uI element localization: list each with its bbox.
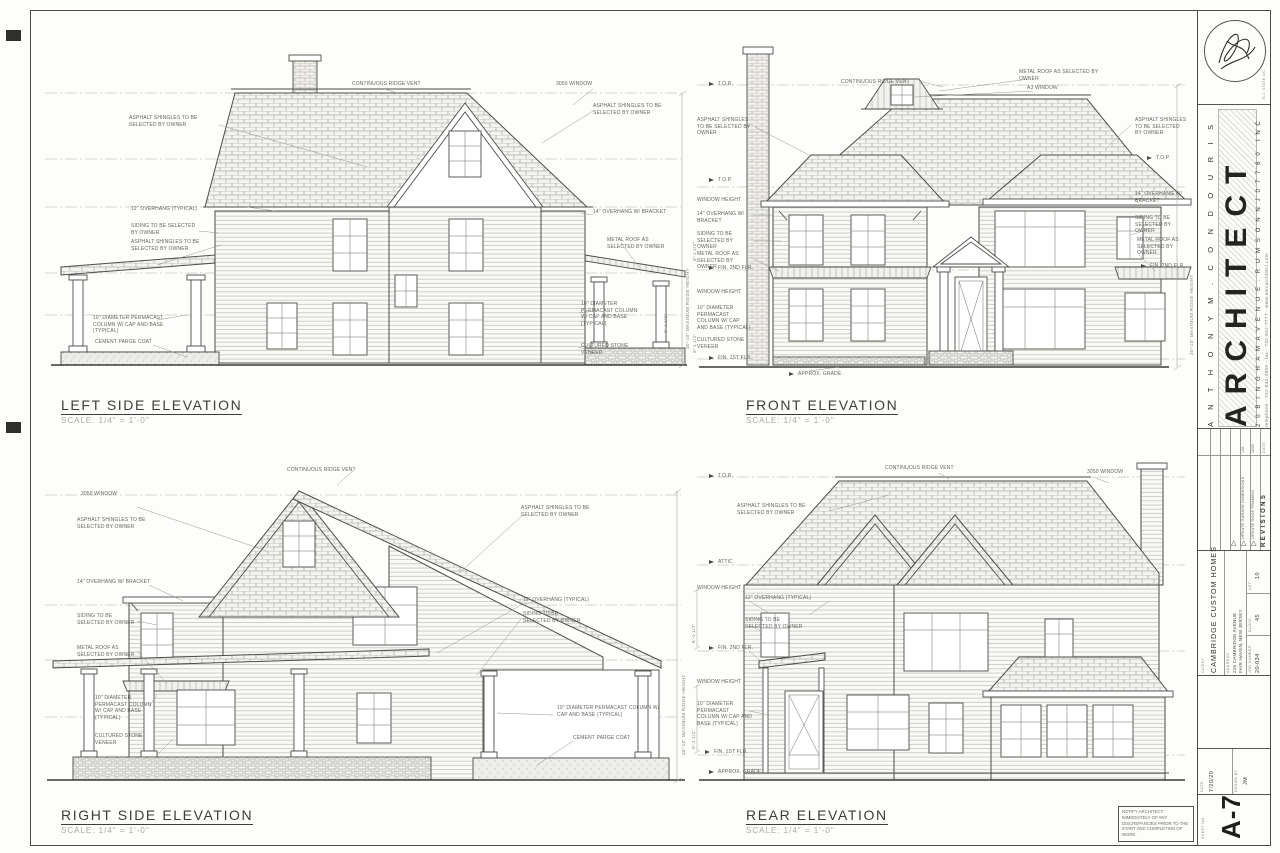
title-block-spare-section bbox=[1198, 676, 1270, 749]
annotation-window-height: WINDOW HEIGHT bbox=[697, 585, 751, 592]
job-number-label: JOB NUMBER bbox=[1248, 645, 1252, 673]
level-marker-icon bbox=[709, 474, 716, 478]
revision-grid-line bbox=[1210, 429, 1211, 550]
elevation-title-right-side: RIGHT SIDE ELEVATION bbox=[61, 807, 253, 825]
annotation-siding-right: SIDING TO BE SELECTED BY OWNER bbox=[523, 611, 585, 624]
annotation-fin-2nd: FIN. 2ND FLR. bbox=[709, 645, 753, 652]
binding-mark bbox=[6, 30, 21, 41]
dim-max-ridge-height: 30'-10" MAXIMUM RIDGE HEIGHT bbox=[681, 674, 687, 755]
annotation-overhang: 12" OVERHANG (TYPICAL) bbox=[523, 597, 615, 604]
annotation-fin-2nd-right: FIN. 2ND FLR. bbox=[1141, 263, 1185, 270]
date-value: 7/20/20 bbox=[1209, 771, 1215, 792]
title-block-date-section: DATE 7/20/20 DRAWN BY JM bbox=[1198, 749, 1270, 795]
block-label: BLOCK bbox=[1248, 618, 1252, 632]
annotation-metal-roof: METAL ROOF AS SELECTED BY OWNER bbox=[77, 645, 137, 658]
firm-name: A N T H O N Y M . C O N D O U R I S bbox=[1206, 120, 1215, 427]
annotation-shingles-right: ASPHALT SHINGLES TO BE SELECTED BY OWNER bbox=[1135, 117, 1187, 137]
firm-contact: telephone - 732-842-3800 - fax - 732-842… bbox=[1264, 253, 1269, 427]
title-block: N.J. STATE LIC. A N T H O N Y M . C O N … bbox=[1197, 11, 1270, 845]
right-side-elevation-panel: 3050 WINDOW ASPHALT SHINGLES TO BE SELEC… bbox=[37, 455, 689, 843]
annotation-tor: T.O.R. bbox=[709, 81, 733, 88]
annotation-shingles-right: ASPHALT SHINGLES TO BE SELECTED BY OWNER bbox=[521, 505, 609, 518]
annotation-ridge-vent: CONTINUOUS RIDGE VENT bbox=[841, 79, 951, 86]
elevation-scale-front: SCALE: 1/4" = 1'-0" bbox=[746, 416, 835, 425]
annotation-overhang-bracket: 14" OVERHANG W/ BRACKET bbox=[697, 211, 753, 224]
annotation-shingles-right: ASPHALT SHINGLES TO BE SELECTED BY OWNER bbox=[593, 103, 683, 116]
annotation-window-height-lower: WINDOW HEIGHT bbox=[697, 679, 751, 686]
date-drawn-divider bbox=[1232, 749, 1233, 794]
annotation-shingles: ASPHALT SHINGLES TO BE SELECTED BY OWNER bbox=[129, 115, 224, 128]
signature-icon bbox=[1205, 21, 1263, 79]
annotation-column-right: 10" DIAMETER PERMACAST COLUMN W/ CAP AND… bbox=[581, 301, 639, 327]
annotation-ridge-vent: CONTINUOUS RIDGE VENT bbox=[885, 465, 1005, 472]
revision-date-2: 1/21 bbox=[1241, 446, 1245, 453]
address-label: ADDRESS bbox=[1226, 653, 1230, 673]
client-name: CAMBRIDGE CUSTOM HOMES bbox=[1209, 546, 1218, 673]
annotation-shingles-left: ASPHALT SHINGLES TO BE SELECTED BY OWNER bbox=[697, 117, 755, 137]
annotation-approx-grade: APPROX. GRADE bbox=[709, 769, 761, 776]
annotation-metal-roof-right: METAL ROOF AS SELECTED BY OWNER bbox=[1137, 237, 1187, 257]
level-marker-icon bbox=[709, 178, 716, 182]
annotation-column: 10" DIAMETER PERMACAST COLUMN W/ CAP AND… bbox=[93, 315, 185, 335]
dim-window-upper: 8'-1 1/2" bbox=[692, 241, 698, 261]
revision-date-divider bbox=[1198, 455, 1270, 456]
level-marker-icon bbox=[1141, 264, 1148, 268]
revision-triangle-icon: △ bbox=[1241, 540, 1246, 547]
client-label: CLIENT bbox=[1201, 658, 1205, 673]
firm-address: 2 0 B I N G H A M A V E N U E . R U M S … bbox=[1256, 150, 1262, 427]
front-elevation-panel: T.O.R. ASPHALT SHINGLES TO BE SELECTED B… bbox=[689, 15, 1195, 435]
annotation-top-right: T.O.P. bbox=[1147, 155, 1170, 162]
annotation-attic: ATTIC bbox=[709, 559, 733, 566]
level-marker-icon bbox=[1147, 156, 1154, 160]
annotation-stone-left: CULTURED STONE VENEER bbox=[95, 733, 150, 746]
title-block-firm-section: A N T H O N Y M . C O N D O U R I S ARCH… bbox=[1198, 105, 1270, 429]
annotation-window-height: WINDOW HEIGHT bbox=[697, 197, 753, 204]
annotation-ridge-vent: CONTINUOUS RIDGE VENT bbox=[287, 467, 417, 474]
drawing-sheet: CONTINUOUS RIDGE VENT 3050 WINDOW ASPHAL… bbox=[0, 0, 1280, 853]
license-text: N.J. STATE LIC. bbox=[1262, 68, 1266, 99]
elevation-scale-left-side: SCALE: 1/4" = 1'-0" bbox=[61, 416, 150, 425]
annotation-column: 10" DIAMETER PERMACAST COLUMN W/ CAP AND… bbox=[697, 701, 753, 727]
annotation-shingles-left: ASPHALT SHINGLES TO BE SELECTED BY OWNER bbox=[77, 517, 162, 530]
elevation-scale-right-side: SCALE: 1/4" = 1'-0" bbox=[61, 826, 150, 835]
annotation-metal-roof: METAL ROOF AS SELECTED BY OWNER bbox=[607, 237, 673, 250]
annotation-siding: SIDING TO BE SELECTED BY OWNER bbox=[131, 223, 201, 236]
drawn-by-value: JM bbox=[1243, 777, 1249, 785]
title-block-client-section: CLIENT CAMBRIDGE CUSTOM HOMES ADDRESS 22… bbox=[1198, 551, 1270, 676]
annotation-overhang-bracket: 14" OVERHANG W/ BRACKET bbox=[593, 209, 673, 216]
elevation-title-left-side: LEFT SIDE ELEVATION bbox=[61, 397, 242, 415]
level-marker-icon bbox=[705, 750, 712, 754]
sheet-border: CONTINUOUS RIDGE VENT 3050 WINDOW ASPHAL… bbox=[30, 10, 1271, 846]
annotation-overhang: 12" OVERHANG (TYPICAL) bbox=[131, 206, 221, 213]
annotation-shingles-porch: ASPHALT SHINGLES TO BE SELECTED BY OWNER bbox=[131, 239, 226, 252]
left-side-elevation-panel: CONTINUOUS RIDGE VENT 3050 WINDOW ASPHAL… bbox=[37, 15, 689, 435]
annotation-parge-coat: CEMENT PARGE COAT bbox=[95, 339, 155, 346]
level-marker-icon bbox=[709, 356, 716, 360]
client-grid-line bbox=[1224, 551, 1225, 675]
revisions-date-heading: DATE bbox=[1262, 442, 1266, 453]
general-note: NOTIFY ARCHITECT IMMEDIATELY OF ANY DISC… bbox=[1118, 806, 1194, 842]
level-marker-icon bbox=[709, 770, 716, 774]
annotation-3050-window: 3050 WINDOW bbox=[556, 81, 616, 88]
dim-window-upper: 8'-1 1/2" bbox=[691, 623, 697, 643]
dim-window-lower: 9'-1 1/2" bbox=[692, 333, 698, 353]
sheet-no-label: SHEET NO. bbox=[1201, 816, 1205, 839]
annotation-ridge-vent: CONTINUOUS RIDGE VENT bbox=[352, 81, 462, 88]
annotation-overhang: 12" OVERHANG (TYPICAL) bbox=[745, 595, 835, 602]
revision-grid-line bbox=[1220, 429, 1221, 550]
elevation-title-front: FRONT ELEVATION bbox=[746, 397, 898, 415]
annotation-overhang-right: 14" OVERHANG W/ BRACKET bbox=[1135, 191, 1187, 204]
annotation-siding: SIDING TO BE SELECTED BY OWNER bbox=[745, 617, 809, 630]
annotation-3050-window: 3050 WINDOW bbox=[81, 491, 143, 498]
revisions-heading: REVISIONS bbox=[1261, 493, 1267, 547]
annotation-overhang-bracket: 14" OVERHANG W/ BRACKET bbox=[77, 579, 155, 586]
annotation-column-right: 10" DIAMETER PERMACAST COLUMN W/ CAP AND… bbox=[557, 705, 662, 718]
date-label: DATE bbox=[1200, 781, 1204, 792]
firm-suffix: I N C bbox=[1256, 120, 1262, 141]
lot-label: LOT bbox=[1248, 582, 1252, 590]
annotation-shingles: ASPHALT SHINGLES TO BE SELECTED BY OWNER bbox=[737, 503, 827, 516]
elevation-scale-rear: SCALE: 1/4" = 1'-0" bbox=[746, 826, 835, 835]
annotation-3050-window: 3050 WINDOW bbox=[1087, 469, 1147, 476]
title-block-revisions-section: REVISIONS DATE UPDATE ROOF FRAMING 10/20… bbox=[1198, 429, 1270, 551]
annotation-window-height: WINDOW HEIGHT bbox=[697, 289, 749, 296]
annotation-column: 10" DIAMETER PERMACAST COLUMN W/ CAP AND… bbox=[697, 305, 751, 331]
block-value: 45 bbox=[1255, 614, 1261, 621]
sheet-number: A-7 bbox=[1216, 794, 1247, 839]
lot-value: 10 bbox=[1255, 572, 1261, 579]
revision-grid-line bbox=[1230, 429, 1231, 550]
annotation-dormer-window: A3 WINDOW bbox=[1027, 85, 1087, 92]
client-grid-line bbox=[1246, 551, 1247, 675]
level-marker-icon bbox=[709, 560, 716, 564]
dim-window-lower: 9'-1 1/2" bbox=[691, 729, 697, 749]
title-block-logo-section: N.J. STATE LIC. bbox=[1198, 11, 1270, 105]
architect-logo bbox=[1204, 20, 1266, 82]
annotation-stone-veneer: CULTURED STONE VENEER bbox=[697, 337, 745, 350]
revision-triangle-icon: △ bbox=[1251, 540, 1256, 547]
address-line-2: FAIR HAVEN, NEW JERSEY bbox=[1238, 609, 1243, 673]
front-elevation-drawing bbox=[689, 15, 1193, 389]
annotation-top-left: T.O.P. bbox=[709, 177, 732, 184]
level-marker-icon bbox=[789, 372, 796, 376]
revision-date-1: 10/20 bbox=[1251, 444, 1255, 453]
annotation-tor: T.O.R. bbox=[709, 473, 733, 480]
dim-max-ridge-height: 30'-10" MAXIMUM RIDGE HEIGHT bbox=[1189, 274, 1195, 355]
rear-elevation-panel: T.O.R. ASPHALT SHINGLES TO BE SELECTED B… bbox=[689, 455, 1195, 843]
annotation-siding-left: SIDING TO BE SELECTED BY OWNER bbox=[77, 613, 139, 626]
annotation-column-left: 10" DIAMETER PERMACAST COLUMN W/ CAP AND… bbox=[95, 695, 159, 721]
level-marker-icon bbox=[709, 266, 716, 270]
dim-porch-height: 9'-1 1/2" bbox=[663, 313, 669, 333]
level-marker-icon bbox=[709, 82, 716, 86]
address-line-1: 225 CAMBRIDGE AVENUE bbox=[1232, 613, 1237, 673]
annotation-siding: SIDING TO BE SELECTED BY OWNER bbox=[697, 231, 749, 251]
binding-mark bbox=[6, 422, 21, 433]
annotation-parge-coat: CEMENT PARGE COAT bbox=[573, 735, 635, 742]
annotation-fin-1st: FIN. 1ST FLR. bbox=[705, 749, 748, 756]
annotation-approx-grade: APPROX. GRADE bbox=[789, 371, 841, 378]
annotation-fin-1st: FIN. 1ST FLR. bbox=[709, 355, 752, 362]
firm-title: ARCHITECT bbox=[1220, 155, 1254, 427]
level-marker-icon bbox=[709, 646, 716, 650]
job-number-value: 20-034 bbox=[1255, 653, 1261, 673]
title-block-sheet-section: SHEET NO. A-7 bbox=[1198, 795, 1270, 842]
annotation-fin-2nd: FIN. 2ND FLR. bbox=[709, 265, 753, 272]
annotation-metal-roof-dormer: METAL ROOF AS SELECTED BY OWNER bbox=[1019, 69, 1105, 82]
annotation-stone-veneer: CULTURED STONE VENEER bbox=[581, 343, 637, 356]
revision-triangle-icon: △ bbox=[1231, 540, 1236, 547]
drawn-by-label: DRAWN BY bbox=[1234, 770, 1238, 792]
revision-entry-1: UPDATE ROOF FRAMING bbox=[1251, 489, 1255, 539]
lot-block-divider bbox=[1246, 593, 1270, 594]
revision-entry-2: UPDATE GARAGE DIMENSIONS bbox=[1241, 477, 1245, 539]
elevation-title-rear: REAR ELEVATION bbox=[746, 807, 888, 825]
block-job-divider bbox=[1246, 635, 1270, 636]
annotation-siding-right: SIDING TO BE SELECTED BY OWNER bbox=[1135, 215, 1185, 235]
